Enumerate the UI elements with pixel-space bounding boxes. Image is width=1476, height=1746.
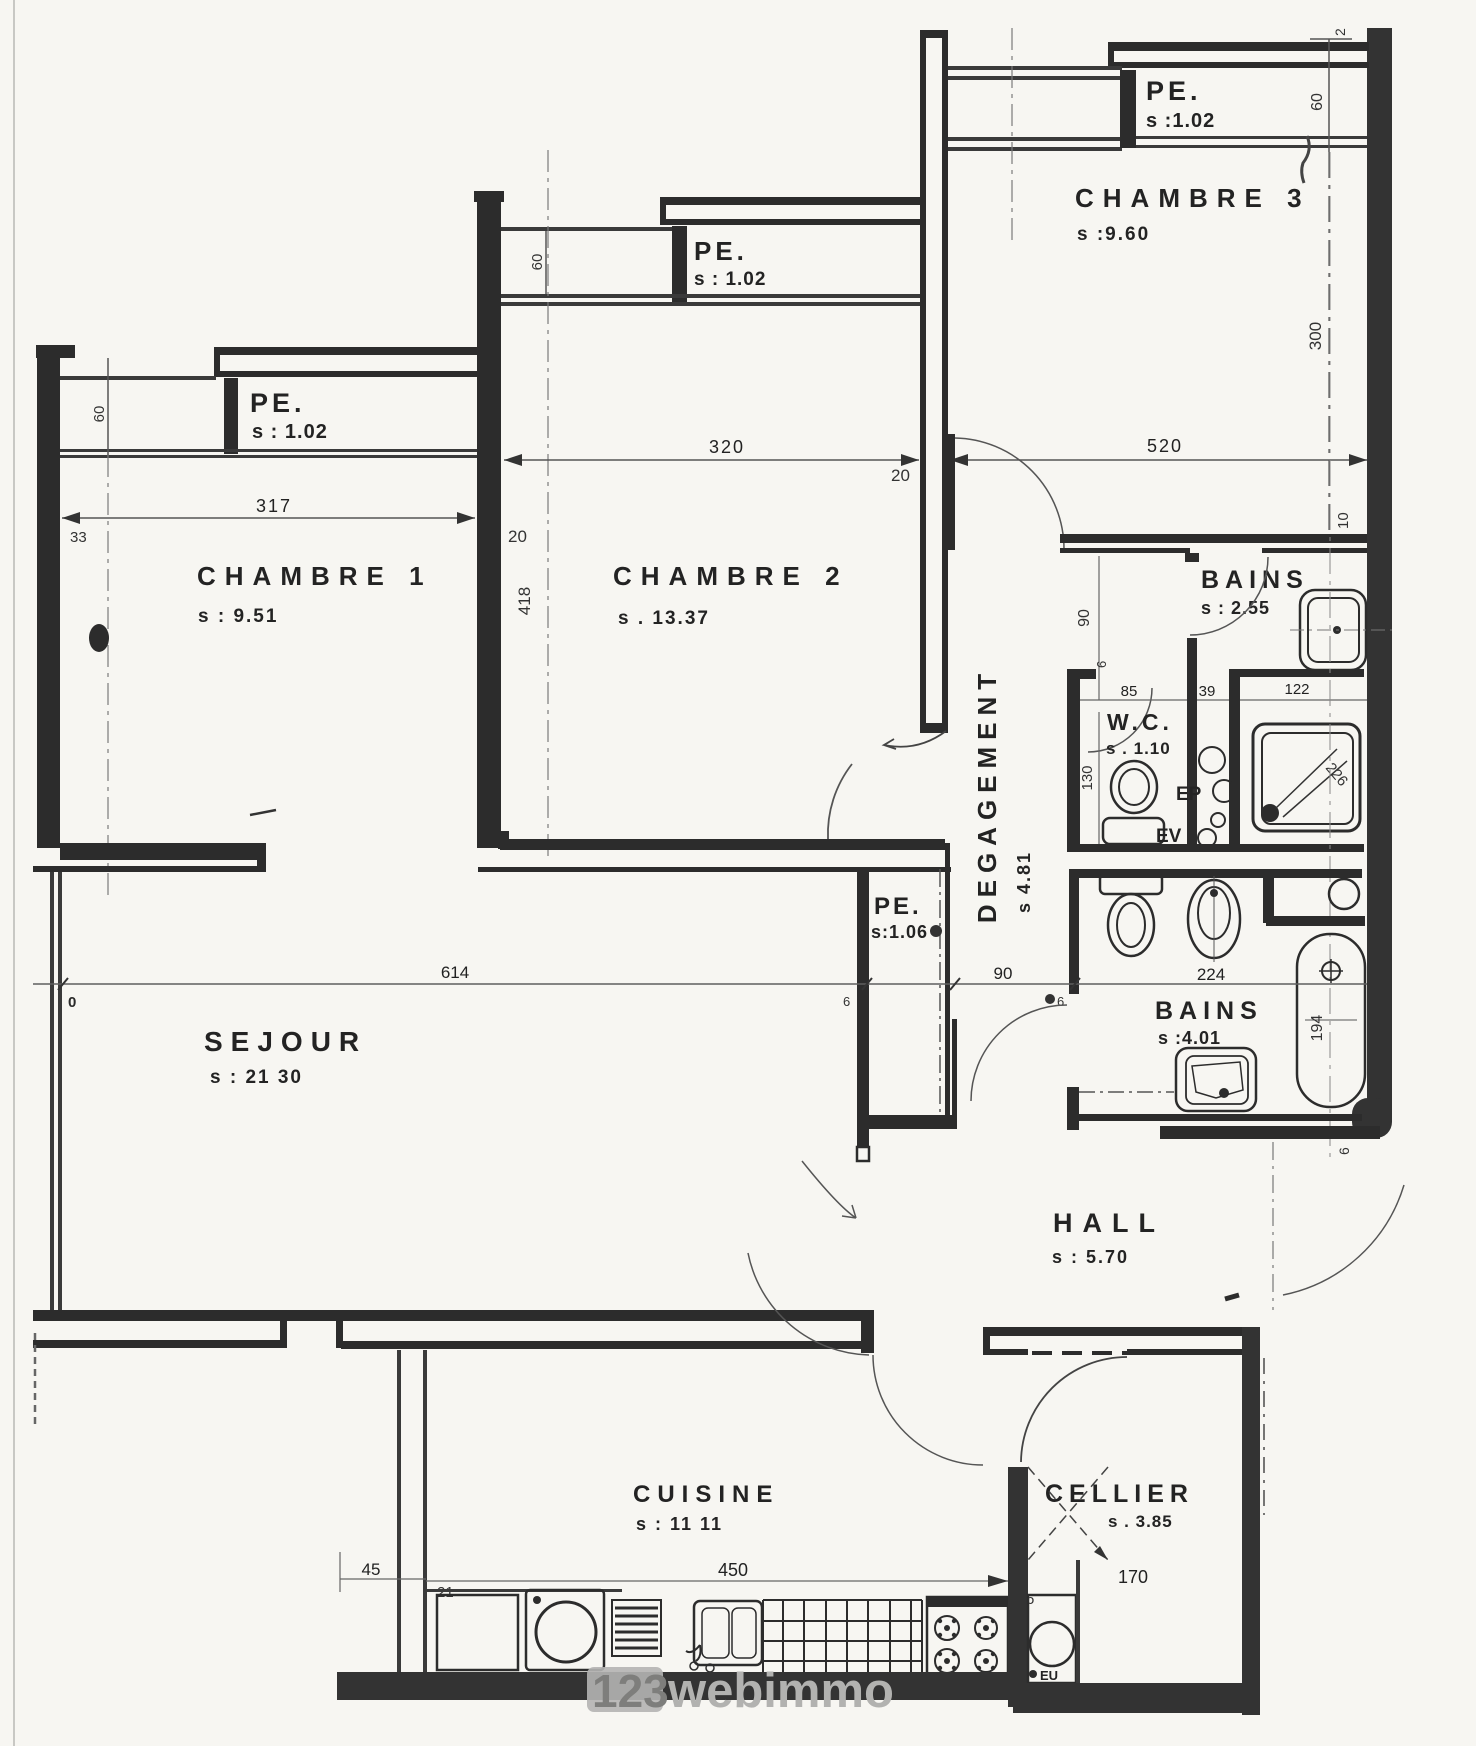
- svg-text:45: 45: [362, 1560, 381, 1579]
- svg-text:webimmo: webimmo: [667, 1664, 894, 1718]
- svg-text:300: 300: [1306, 322, 1325, 350]
- svg-text:PE.: PE.: [874, 893, 922, 920]
- svg-text:s . 13.37: s . 13.37: [618, 608, 710, 629]
- svg-text:s . 3.85: s . 3.85: [1108, 1512, 1173, 1531]
- svg-text:s:1.06: s:1.06: [871, 922, 928, 942]
- svg-text:85: 85: [1121, 683, 1138, 700]
- svg-text:s :1.02: s :1.02: [1146, 110, 1215, 132]
- svg-text:2: 2: [1332, 28, 1348, 36]
- svg-text:90: 90: [994, 964, 1013, 983]
- svg-text:EV: EV: [1156, 826, 1182, 847]
- svg-text:CHAMBRE 3: CHAMBRE 3: [1075, 183, 1311, 213]
- svg-text:EU: EU: [1040, 1668, 1058, 1683]
- svg-text:60: 60: [529, 254, 546, 271]
- svg-text:320: 320: [709, 437, 745, 457]
- svg-text:33: 33: [70, 529, 87, 546]
- svg-text:EP: EP: [1176, 784, 1202, 805]
- svg-text:s :4.01: s :4.01: [1158, 1028, 1221, 1048]
- svg-text:s 4.81: s 4.81: [1014, 851, 1034, 913]
- svg-text:90: 90: [1076, 609, 1093, 627]
- svg-text:W.C.: W.C.: [1107, 709, 1173, 735]
- svg-text:224: 224: [1197, 965, 1225, 984]
- svg-text:s : 9.51: s : 9.51: [198, 606, 278, 627]
- svg-text:20: 20: [891, 466, 910, 485]
- svg-text:s : 5.70: s : 5.70: [1052, 1247, 1129, 1267]
- svg-text:CHAMBRE 2: CHAMBRE 2: [613, 561, 849, 591]
- svg-text:DEGAGEMENT: DEGAGEMENT: [972, 667, 1002, 923]
- svg-text:21: 21: [437, 1584, 454, 1601]
- svg-text:BAINS: BAINS: [1201, 566, 1309, 594]
- svg-text:CUISINE: CUISINE: [633, 1481, 779, 1508]
- svg-text:60: 60: [1309, 93, 1326, 111]
- svg-text:60: 60: [91, 406, 108, 423]
- svg-text:194: 194: [1309, 1015, 1326, 1042]
- svg-text:317: 317: [256, 496, 292, 516]
- svg-text:6: 6: [1057, 994, 1064, 1009]
- svg-text:450: 450: [718, 1560, 748, 1580]
- svg-text:39: 39: [1199, 683, 1216, 700]
- svg-text:s : 11 11: s : 11 11: [636, 1514, 723, 1534]
- svg-text:614: 614: [441, 963, 469, 982]
- svg-text:0: 0: [68, 994, 76, 1011]
- svg-text:PE.: PE.: [1146, 76, 1202, 106]
- svg-text:s : 1.02: s : 1.02: [252, 421, 328, 443]
- svg-text:BAINS: BAINS: [1155, 997, 1263, 1025]
- svg-text:PE.: PE.: [694, 236, 748, 266]
- svg-text:s : 1.02: s : 1.02: [694, 269, 766, 290]
- svg-text:10: 10: [1335, 512, 1352, 529]
- svg-text:6: 6: [843, 994, 850, 1009]
- svg-text:520: 520: [1147, 436, 1183, 456]
- svg-text:s :9.60: s :9.60: [1077, 224, 1150, 245]
- svg-text:20: 20: [508, 527, 527, 546]
- svg-text:123: 123: [592, 1665, 669, 1717]
- svg-text:122: 122: [1284, 681, 1309, 698]
- svg-text:6: 6: [1094, 661, 1109, 668]
- svg-text:130: 130: [1079, 765, 1096, 790]
- svg-text:s : 2.55: s : 2.55: [1201, 598, 1270, 618]
- svg-text:s : 21 30: s : 21 30: [210, 1067, 303, 1088]
- svg-text:SEJOUR: SEJOUR: [204, 1026, 367, 1057]
- svg-text:6: 6: [1336, 1147, 1352, 1155]
- svg-text:CHAMBRE 1: CHAMBRE 1: [197, 561, 433, 591]
- svg-text:CELLIER: CELLIER: [1045, 1480, 1194, 1508]
- svg-text:170: 170: [1118, 1567, 1148, 1587]
- svg-text:418: 418: [515, 587, 534, 615]
- svg-text:PE.: PE.: [250, 388, 306, 418]
- svg-text:HALL: HALL: [1053, 1208, 1165, 1238]
- svg-text:s . 1.10: s . 1.10: [1106, 739, 1171, 758]
